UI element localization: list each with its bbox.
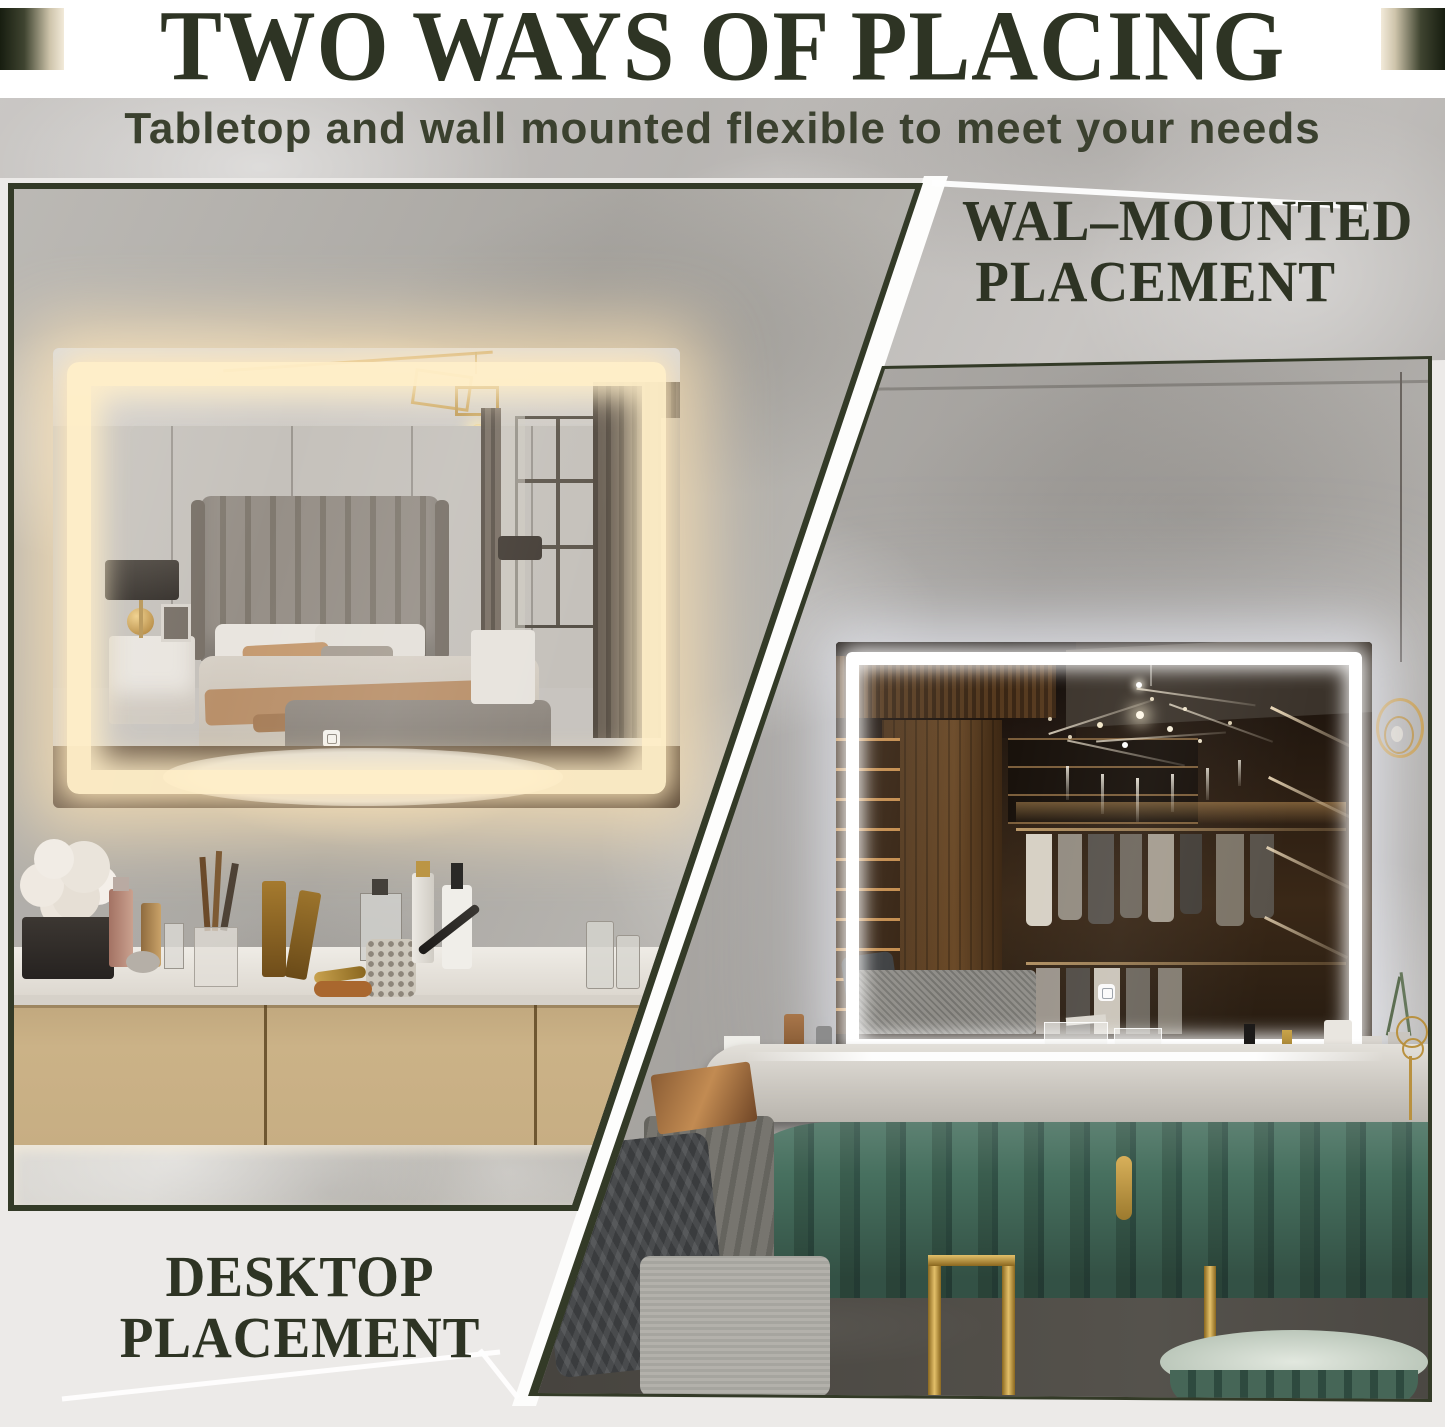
desktop-label: DESKTOP PLACEMENT — [60, 1246, 540, 1368]
desktop-label-line1: DESKTOP — [72, 1246, 528, 1307]
brush-cup — [194, 927, 238, 987]
gold-leg — [1002, 1261, 1015, 1395]
dropper-top — [451, 863, 463, 889]
hanging-cable — [1400, 372, 1402, 662]
wall-mounted-label-line2: PLACEMENT — [962, 251, 1409, 312]
perfume-cap — [372, 879, 388, 895]
candelabra-ring — [1402, 1038, 1424, 1060]
amber-dish — [314, 981, 372, 997]
small-glass-bottle — [164, 923, 184, 969]
vanity-mirror — [53, 348, 680, 808]
gold-serum-bottle — [262, 881, 286, 977]
page-title: TWO WAYS OF PLACING — [101, 0, 1344, 92]
gold-cap — [416, 861, 430, 877]
header: TWO WAYS OF PLACING — [0, 0, 1445, 99]
bottle-cap — [113, 877, 129, 891]
candelabra-stem — [1409, 1056, 1412, 1120]
desktop-label-line2: PLACEMENT — [72, 1307, 528, 1368]
gold-drawer-handle — [1116, 1156, 1132, 1220]
flower-vase — [22, 917, 114, 979]
glass-bottle — [616, 935, 640, 989]
gold-leg — [928, 1255, 941, 1395]
accent-bar-left — [0, 8, 64, 70]
compact-mirror — [126, 951, 160, 973]
gold-leg-crossbar — [928, 1255, 1015, 1266]
gold-candelabra — [1394, 1016, 1428, 1120]
pearl-jar — [366, 939, 416, 997]
gold-ring-decor — [1376, 698, 1420, 768]
subtitle: Tabletop and wall mounted flexible to me… — [0, 104, 1445, 154]
stool-skirt — [1170, 1370, 1418, 1402]
makeup-items — [14, 829, 714, 999]
vanity-top-light-streak — [744, 1052, 1384, 1061]
glass-bottle — [586, 921, 614, 989]
makeup-brush — [212, 851, 222, 931]
makeup-brush — [199, 857, 210, 931]
accent-bar-right — [1381, 8, 1445, 70]
led-ring-warm — [67, 362, 666, 794]
product-infographic: TWO WAYS OF PLACING Tabletop and wall mo… — [0, 0, 1445, 1427]
wall-mounted-label: WAL–MOUNTED PLACEMENT — [962, 190, 1432, 312]
wall-mounted-label-line1: WAL–MOUNTED — [962, 190, 1409, 251]
makeup-brush — [220, 863, 239, 931]
ring-stone — [1391, 726, 1403, 742]
flower-bouquet — [34, 839, 74, 879]
gold-serum-bottle — [285, 890, 322, 980]
bench-cushion — [640, 1256, 830, 1396]
